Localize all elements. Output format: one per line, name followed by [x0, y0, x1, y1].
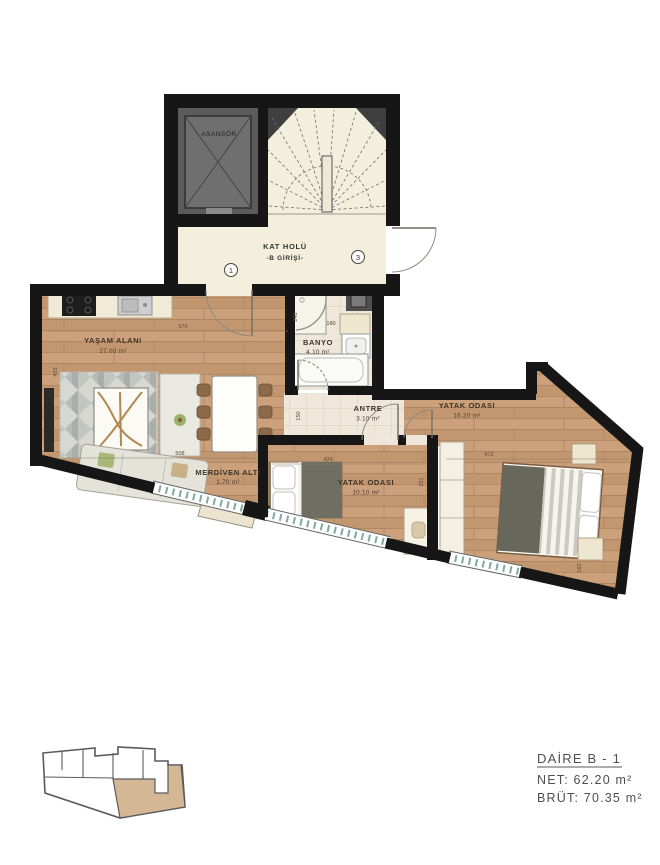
stair-newel: [322, 156, 332, 212]
dim-bedroom1-height: 162: [577, 563, 583, 572]
entry-area: 3.10 m²: [356, 416, 379, 423]
cooktop: [62, 294, 96, 316]
bedroom2-door-opening: [364, 435, 398, 445]
dim-bedroom2-top: 424: [323, 457, 332, 463]
coffee-table: [94, 388, 148, 450]
bedroom2-label: YATAK ODASI: [338, 478, 394, 487]
net-area: NET: 62.20 m²: [537, 773, 633, 787]
dim-living-left: 453: [53, 367, 59, 376]
dim-entry-left: 150: [296, 411, 302, 420]
entry-label: ANTRE: [354, 404, 383, 413]
bedroom1-area: 16.20 m²: [453, 413, 480, 420]
door-number-1-label: 1: [229, 266, 233, 275]
single-bed: [266, 462, 342, 518]
unit-name: DAİRE B - 1: [537, 751, 621, 766]
dim-bedroom2-right: 291: [419, 477, 425, 486]
pillow: [580, 472, 602, 512]
blanket: [300, 462, 342, 518]
blanket: [497, 465, 545, 554]
bathroom-area: 4.10 m²: [306, 349, 329, 356]
hall-entry-label: -B GİRİŞİ-: [266, 254, 303, 262]
nightstand: [578, 538, 603, 560]
dim-bath-left: 241: [293, 312, 299, 321]
bedroom1-door-opening: [406, 435, 427, 445]
living-room-area: 27.00 m²: [99, 348, 126, 355]
entry-floor: [284, 393, 404, 440]
dim-bath-top: 180: [326, 321, 335, 327]
dim-bedroom1-width: 472: [484, 452, 493, 458]
bathtub: [294, 354, 368, 386]
hall-label: KAT HOLÜ: [263, 242, 307, 251]
sofa-pillow: [97, 452, 115, 468]
dim-living-mid: 508: [175, 451, 184, 457]
striped-blanket: [539, 468, 583, 556]
nightstand: [572, 444, 596, 464]
bedroom2-area: 10.10 m²: [352, 490, 379, 497]
bedroom1-label: YATAK ODASI: [439, 401, 495, 410]
desk-chair: [412, 522, 425, 538]
bathroom-label: BANYO: [303, 338, 333, 347]
door-number-1: 1: [225, 264, 238, 277]
elevator: ASANSÖR: [178, 108, 258, 216]
under-stairs-area: 1.70 m²: [216, 479, 239, 486]
lounge-chair: [160, 374, 200, 456]
dim-living-top: 570: [178, 324, 187, 330]
door-number-3: 3: [352, 251, 365, 264]
floor-plan-svg: ASANSÖR: [0, 0, 660, 865]
hall-door-opening: [386, 226, 400, 274]
elevator-label: ASANSÖR: [201, 130, 236, 138]
pillow: [273, 466, 295, 489]
stair-hall: ASANSÖR: [164, 94, 400, 292]
under-stairs-label: MERDİVEN ALTI: [195, 468, 260, 477]
floor-plan: ASANSÖR: [0, 0, 660, 865]
sofa-pillow: [171, 462, 189, 478]
bathroom-cabinet: [340, 314, 370, 334]
tv: [44, 388, 54, 452]
gross-area: BRÜT: 70.35 m²: [537, 791, 643, 805]
entry-door-opening: [206, 284, 252, 296]
door-number-3-label: 3: [356, 253, 360, 262]
living-room-label: YAŞAM ALANI: [84, 336, 142, 345]
